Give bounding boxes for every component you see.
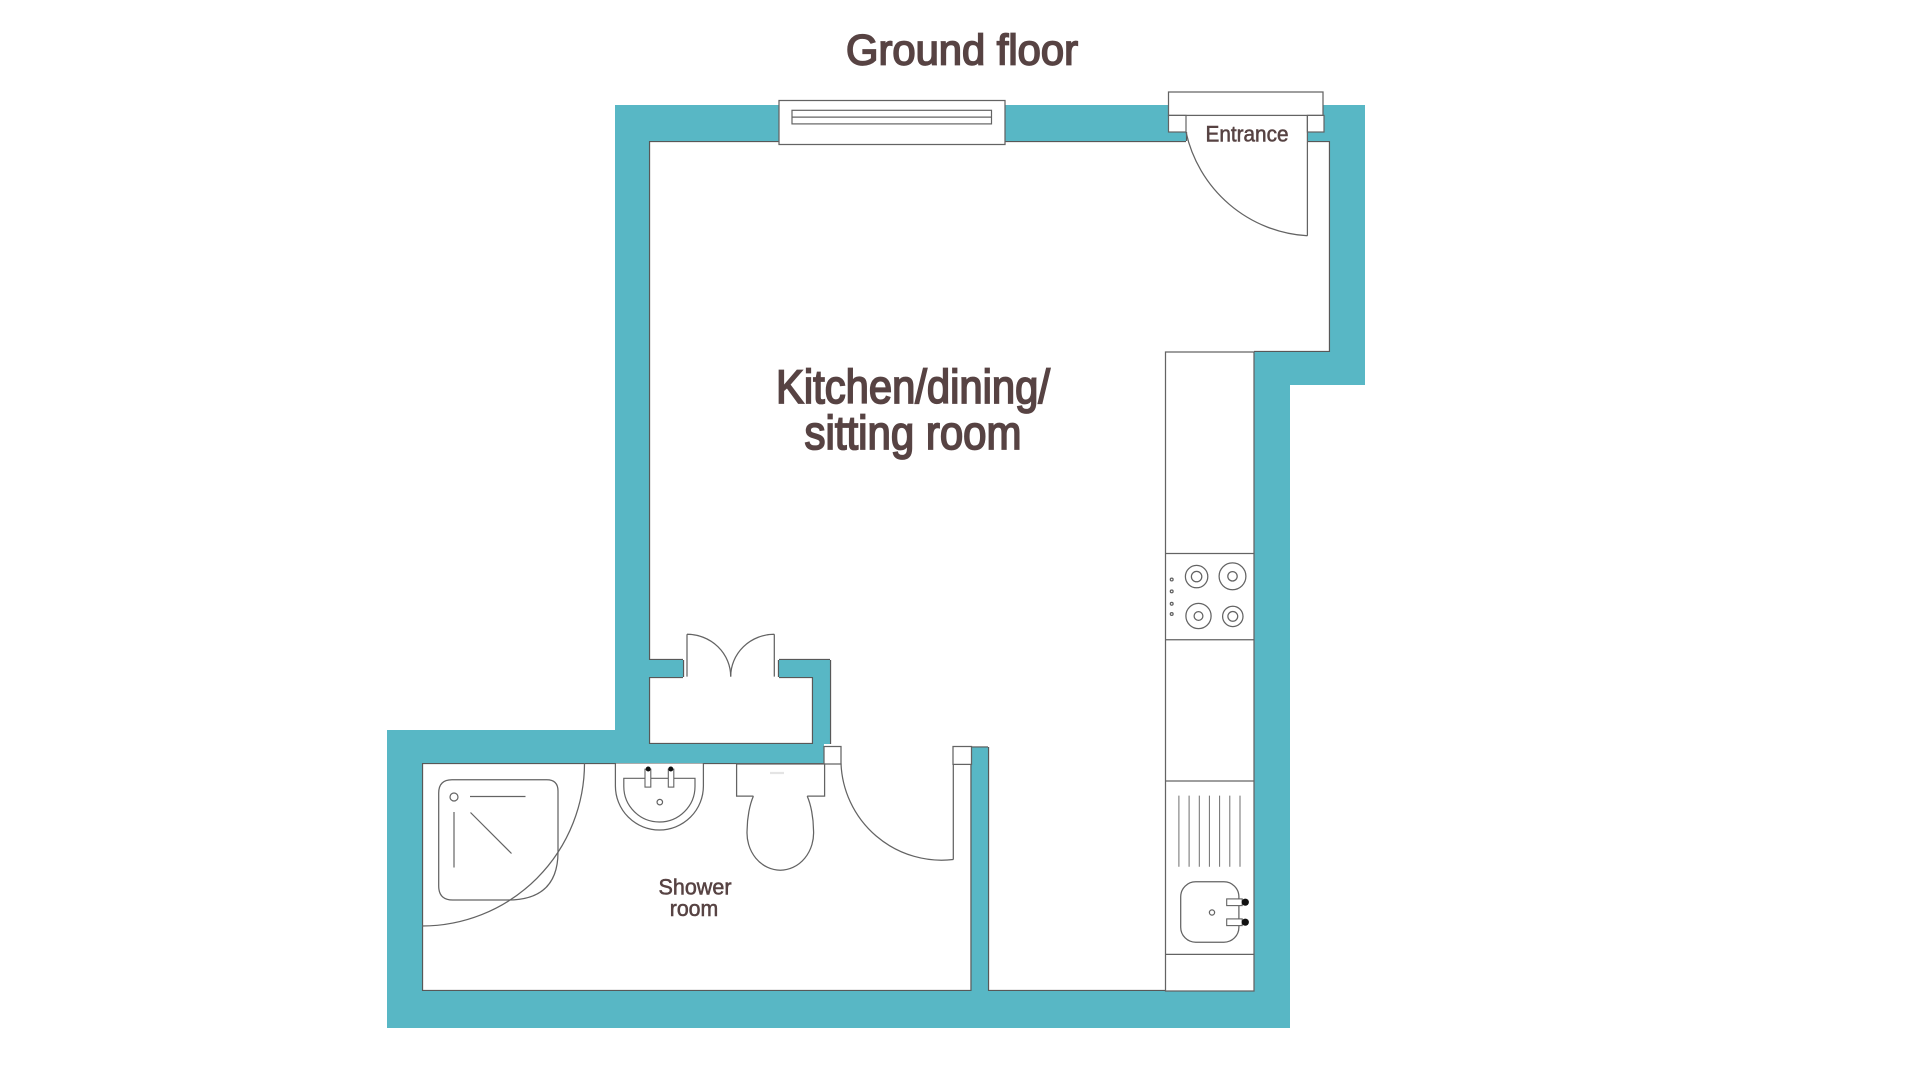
svg-text:Kitchen/dining/: Kitchen/dining/ [776, 361, 1051, 414]
svg-text:room: room [670, 896, 719, 921]
svg-text:Entrance: Entrance [1206, 121, 1289, 146]
svg-text:sitting room: sitting room [805, 407, 1022, 460]
svg-text:Ground floor: Ground floor [846, 26, 1078, 74]
